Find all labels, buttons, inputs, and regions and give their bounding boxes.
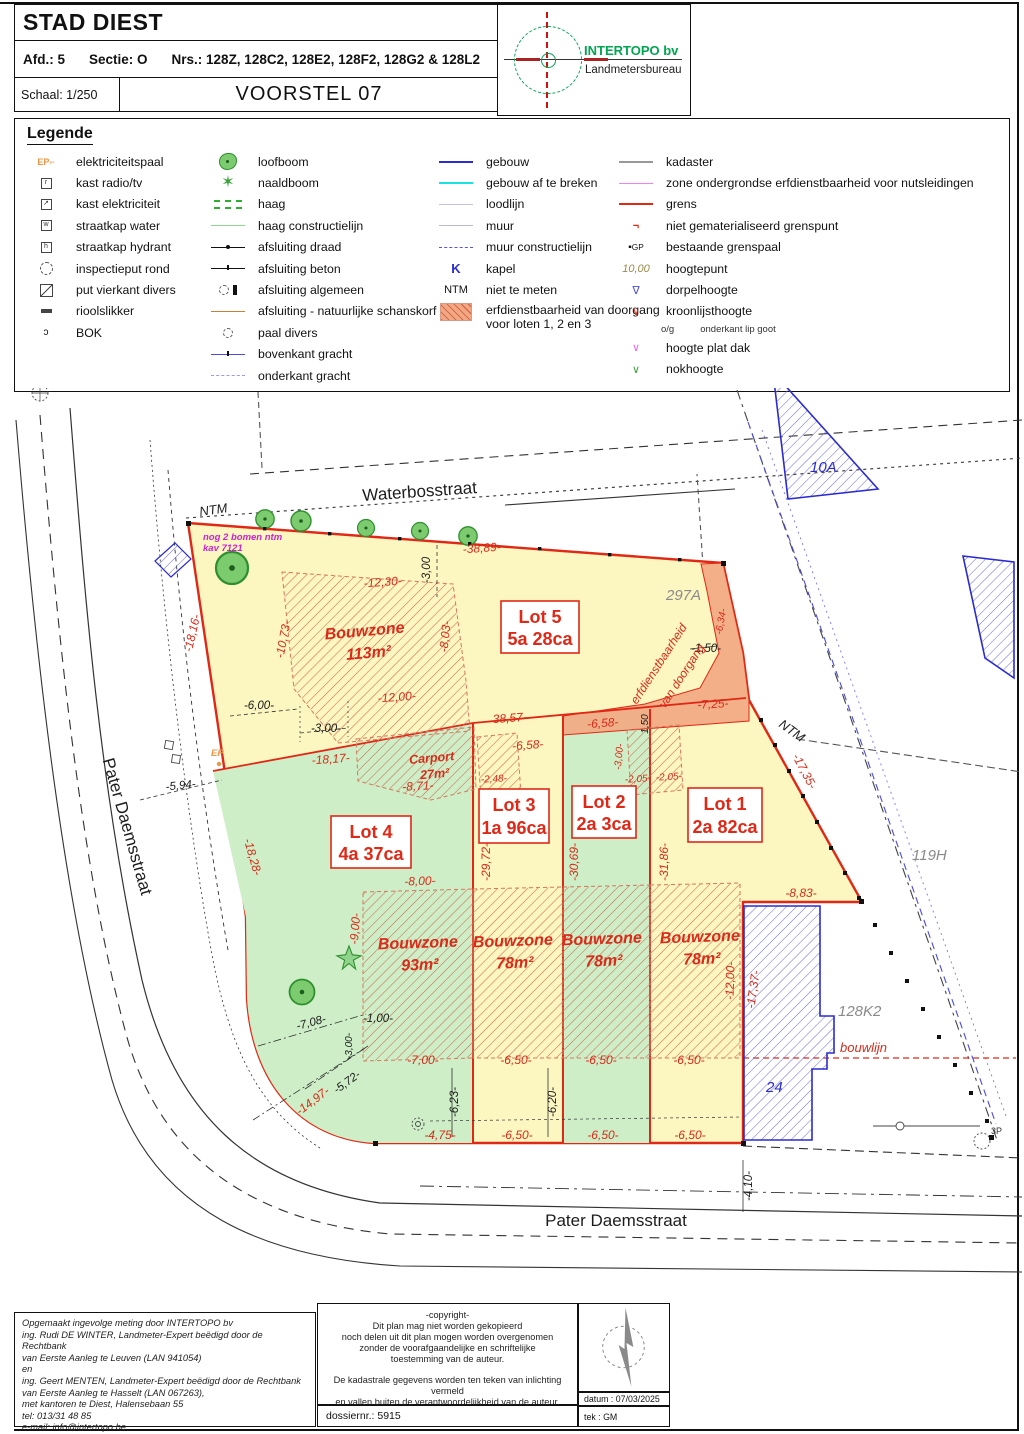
svg-text:-6,50-: -6,50- — [585, 1053, 616, 1067]
svg-text:-7,25-: -7,25- — [697, 696, 729, 712]
scale-label: Schaal: 1/250 — [15, 78, 120, 111]
svg-text:5a 28ca: 5a 28ca — [507, 629, 573, 649]
legend-item: wstraatkap water — [25, 215, 176, 236]
legend-title: Legende — [27, 125, 93, 145]
legend-item: haag — [207, 194, 436, 215]
flat-roof-height-icon: ∨ — [615, 341, 657, 354]
title-block: STAD DIEST Afd.: 5 Sectie: O Nrs.: 128Z,… — [14, 4, 499, 112]
lot4-label: Lot 4 4a 37ca — [331, 816, 411, 868]
ep-label: EP — [211, 748, 224, 759]
gabion-fence-icon — [207, 311, 249, 312]
svg-text:-12,00-: -12,00- — [377, 689, 416, 706]
legend-item: onderkant gracht — [207, 365, 436, 386]
height-point-icon: 10,00 — [615, 263, 657, 275]
legend-item: ∨nokhoogte — [615, 359, 974, 380]
cornice-height-icon: ∨ — [615, 305, 657, 318]
logo-company-name: INTERTOPO bv — [584, 43, 678, 58]
svg-text:-3,00: -3,00 — [421, 556, 433, 583]
building-label-24: 24 — [765, 1079, 783, 1096]
svg-text:-12,30-: -12,30- — [363, 574, 402, 591]
parcel-10a-triangle — [773, 388, 878, 499]
north-arrow-logo-icon — [579, 1304, 668, 1390]
svg-text:-4,10-: -4,10- — [743, 1171, 755, 1201]
legend-item: inspectieput rond — [25, 258, 176, 279]
legend-item: kadaster — [615, 151, 974, 172]
svg-text:-6,23-: -6,23- — [449, 1087, 461, 1117]
svg-text:-6,50-: -6,50- — [673, 1053, 704, 1067]
cornice-subnote: o/gonderkant lip goot — [615, 322, 974, 337]
svg-text:38,57-: 38,57- — [492, 710, 527, 726]
afdeling-label: Afd.: 5 — [23, 52, 65, 67]
svg-text:Lot 3: Lot 3 — [493, 795, 536, 815]
svg-text:-6,58-: -6,58- — [587, 715, 619, 731]
legend-item: bovenkant gracht — [207, 344, 436, 365]
electricity-pole-icon: EP⌐ — [25, 157, 67, 167]
legend-col-boundaries-heights: kadaster zone ondergrondse erfdienstbaar… — [615, 151, 974, 380]
svg-text:-8,83-: -8,83- — [785, 886, 816, 900]
legend-item: ¬niet gematerialiseerd grenspunt — [615, 215, 974, 236]
svg-text:-6,58-: -6,58- — [512, 737, 544, 753]
svg-text:2a 82ca: 2a 82ca — [692, 817, 758, 837]
legend-item: rkast radio/tv — [25, 172, 176, 193]
legend-item: loofboom — [207, 151, 436, 172]
lot1-label: Lot 1 2a 82ca — [688, 788, 762, 842]
svg-text:-3,00-: -3,00- — [311, 723, 341, 735]
legend-item: ɔBOK — [25, 322, 176, 343]
svg-text:78m²: 78m² — [683, 950, 722, 968]
parcel-label-119h: 119H — [912, 847, 947, 864]
cabinet-radio-tv-icon: r — [25, 178, 67, 189]
svg-text:-9,00-: -9,00- — [347, 913, 363, 945]
svg-text:-12,00-: -12,00- — [722, 962, 737, 1000]
svg-text:Bouwzone: Bouwzone — [562, 930, 643, 950]
lot2-label: Lot 2 2a 3ca — [572, 786, 636, 838]
surveyor-logo: INTERTOPO bv Landmetersbureau — [497, 4, 691, 116]
parcel-label-10a: 10A — [810, 459, 837, 476]
svg-text:Lot 4: Lot 4 — [350, 822, 393, 842]
servitude-swatch-icon — [435, 303, 477, 321]
svg-text:-7,00-: -7,00- — [407, 1053, 438, 1067]
ditch-top-icon — [207, 354, 249, 355]
legend-item: paal divers — [207, 322, 436, 343]
svg-text:Bouwzone: Bouwzone — [473, 932, 554, 952]
legend-item: afsluiting - natuurlijke schanskorf — [207, 301, 436, 322]
legend-item: put vierkant divers — [25, 279, 176, 300]
bouwzone-78a-hatch — [473, 887, 563, 1058]
logo-compass-center — [541, 53, 556, 68]
sectie-label: Sectie: O — [89, 52, 148, 67]
wall-construction-line-icon — [435, 247, 477, 248]
sill-height-icon: ∇ — [615, 284, 657, 297]
svg-text:-6,20-: -6,20- — [547, 1087, 559, 1117]
svg-text:-3,00-: -3,00- — [613, 743, 626, 771]
legend-panel: Legende EP⌐elektriciteitspaal rkast radi… — [14, 118, 1010, 392]
svg-text:-18,17-: -18,17- — [311, 751, 350, 768]
bok-icon: ɔ — [25, 327, 67, 338]
building-demolish-line-icon — [435, 182, 477, 184]
legend-item: ▪GPbestaande grenspaal — [615, 237, 974, 258]
svg-text:-4,75-: -4,75- — [424, 1128, 455, 1142]
legend-item: EP⌐elektriciteitspaal — [25, 151, 176, 172]
svg-text:-1,00-: -1,00- — [363, 1013, 393, 1025]
bouwlijn-label: bouwlijn — [840, 1040, 887, 1055]
legend-item: ↗kast elektriciteit — [25, 194, 176, 215]
legend-item: grens — [615, 194, 974, 215]
legend-col-utilities: EP⌐elektriciteitspaal rkast radio/tv ↗ka… — [25, 151, 176, 344]
bouwzone-78b-hatch — [563, 885, 650, 1058]
svg-text:93m²: 93m² — [401, 956, 440, 974]
surveyor-info-box: Opgemaakt ingevolge meting door INTERTOP… — [14, 1312, 316, 1427]
parcel-label-128k2: 128K2 — [838, 1003, 882, 1020]
drafter-box: tek : GM — [578, 1406, 670, 1427]
svg-text:-38,89-: -38,89- — [462, 540, 501, 557]
svg-text:-6,50-: -6,50- — [500, 1053, 531, 1067]
ntm-label-top: NTM — [198, 500, 228, 519]
utility-servitude-line-icon — [615, 183, 657, 184]
boundary-line-icon — [615, 203, 657, 205]
legend-item: ✶naaldboom — [207, 172, 436, 193]
svg-text:-2,05-: -2,05- — [656, 771, 683, 783]
legend-item: haag constructielijn — [207, 215, 436, 236]
lot3-label: Lot 3 1a 96ca — [479, 789, 549, 843]
ntm-label-right: NTM — [776, 716, 808, 745]
logo-red-dash-right — [584, 58, 608, 61]
legend-item: hstraatkap hydrant — [25, 237, 176, 258]
street-label-pater-daemsstraat-left: Pater Daemsstraat — [99, 756, 156, 898]
street-cap-hydrant-icon: h — [25, 242, 67, 253]
legend-item: afsluiting algemeen — [207, 279, 436, 300]
pole-misc-icon — [207, 328, 249, 338]
svg-text:-8,00-: -8,00- — [404, 873, 436, 888]
svg-text:Lot 5: Lot 5 — [519, 607, 562, 627]
cadastral-refs: Afd.: 5 Sectie: O Nrs.: 128Z, 128C2, 128… — [15, 40, 498, 77]
legend-item: afsluiting draad — [207, 237, 436, 258]
svg-text:2a 3ca: 2a 3ca — [576, 814, 632, 834]
svg-text:-30,69-: -30,69- — [567, 843, 581, 881]
gully-icon — [25, 309, 67, 313]
legend-item: zone ondergrondse erfdienstbaarheid voor… — [615, 172, 974, 193]
svg-text:Lot 1: Lot 1 — [704, 794, 747, 814]
svg-text:78m²: 78m² — [585, 952, 624, 970]
street-label-waterbosstraat: Waterbosstraat — [362, 478, 478, 505]
legend-item: ∇dorpelhoogte — [615, 279, 974, 300]
parcel-label-297a: 297A — [665, 587, 701, 604]
boundary-post-icon: ▪GP — [615, 242, 657, 253]
copyright-box: -copyright- Dit plan mag niet worden gek… — [317, 1303, 578, 1405]
street-cap-water-icon: w — [25, 220, 67, 231]
svg-text:-3,00-: -3,00- — [344, 1032, 355, 1059]
conifer-tree-icon: ✶ — [207, 176, 249, 190]
svg-text:Bouwzone: Bouwzone — [378, 934, 459, 954]
svg-text:-2,48-: -2,48- — [481, 773, 508, 785]
page-title: STAD DIEST — [15, 5, 498, 40]
svg-text:Bouwzone: Bouwzone — [660, 928, 741, 948]
logo-tagline: Landmetersbureau — [585, 64, 682, 76]
chapel-icon: K — [435, 261, 477, 276]
svg-text:Lot 2: Lot 2 — [583, 792, 626, 812]
legend-item: afsluiting beton — [207, 258, 436, 279]
general-fence-icon — [207, 285, 249, 295]
point-label-3p: 3P — [991, 1126, 1002, 1136]
svg-text:-6,50-: -6,50- — [587, 1128, 618, 1142]
parcel-numbers: Nrs.: 128Z, 128C2, 128E2, 128F2, 128G2 &… — [172, 52, 480, 67]
street-label-pater-daemsstraat-bottom: Pater Daemsstraat — [545, 1211, 687, 1230]
hedge-construction-line-icon — [207, 225, 249, 226]
ntm-icon: NTM — [435, 284, 477, 296]
svg-text:27m²: 27m² — [419, 766, 451, 783]
inspection-pit-round-icon — [25, 262, 67, 275]
legend-item: rioolslikker — [25, 301, 176, 322]
tree-note-line1: nog 2 bomen ntm — [203, 532, 283, 543]
svg-text:-2,05-: -2,05- — [625, 773, 652, 785]
ridge-height-icon: ∨ — [615, 363, 657, 376]
svg-text:-31,86-: -31,86- — [657, 843, 671, 881]
svg-text:-18,16-: -18,16- — [181, 613, 203, 653]
site-plan-map: -38,89- -12,30- -3,00 -18,16- -10,73- -8… — [0, 388, 1024, 1313]
plumb-line-icon — [435, 204, 477, 205]
square-pit-icon — [25, 284, 67, 297]
svg-text:1a 96ca: 1a 96ca — [481, 818, 547, 838]
legend-item: ∨kroonlijsthoogte — [615, 301, 974, 322]
legend-item: 10,00hoogtepunt — [615, 258, 974, 279]
legend-item: ∨hoogte plat dak — [615, 337, 974, 358]
footer-logo-box — [578, 1303, 670, 1392]
svg-text:-5,94-: -5,94- — [165, 778, 196, 793]
cadastre-line-icon — [615, 161, 657, 163]
ditch-bottom-icon — [207, 375, 249, 376]
cabinet-electricity-icon: ↗ — [25, 199, 67, 210]
svg-text:-29,72-: -29,72- — [479, 843, 493, 881]
building-line-icon — [435, 161, 477, 163]
legend-col-vegetation-fences: loofboom ✶naaldboom haag haag constructi… — [207, 151, 436, 386]
date-box: datum : 07/03/2025 — [578, 1392, 670, 1406]
tree-note-line2: kav 7121 — [203, 543, 243, 554]
wire-fence-icon — [207, 247, 249, 248]
svg-text:1,50: 1,50 — [640, 714, 651, 734]
proposal-title: VOORSTEL 07 — [120, 78, 498, 111]
svg-text:78m²: 78m² — [496, 954, 535, 972]
hedge-icon — [207, 200, 249, 209]
building-24 — [744, 906, 834, 1140]
dossier-number-box: dossiernr.: 5915 — [317, 1405, 578, 1427]
svg-text:4a 37ca: 4a 37ca — [338, 844, 404, 864]
svg-text:-6,50-: -6,50- — [501, 1128, 532, 1142]
lot5-label: Lot 5 5a 28ca — [501, 601, 579, 653]
svg-text:-6,00-: -6,00- — [244, 700, 274, 712]
bouwzone-93-hatch — [363, 889, 473, 1061]
unmaterialized-point-icon: ¬ — [615, 220, 657, 232]
survey-plan-sheet: STAD DIEST Afd.: 5 Sectie: O Nrs.: 128Z,… — [0, 0, 1024, 1434]
svg-text:-6,50-: -6,50- — [674, 1128, 705, 1142]
concrete-fence-icon — [207, 268, 249, 269]
deciduous-tree-icon — [207, 153, 249, 170]
wall-line-icon — [435, 225, 477, 226]
